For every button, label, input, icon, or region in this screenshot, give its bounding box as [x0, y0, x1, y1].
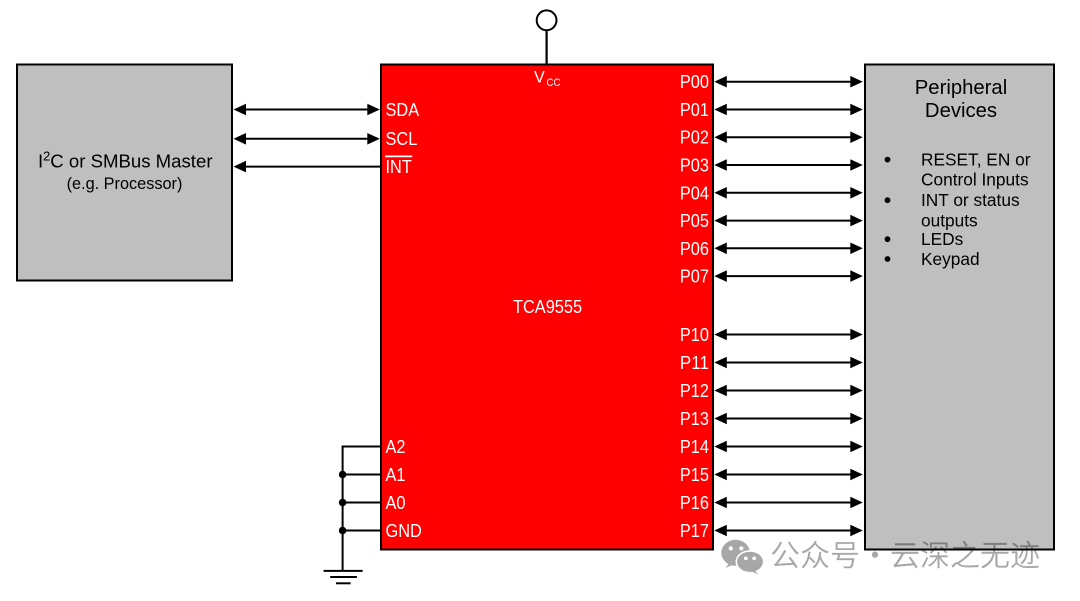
- svg-text:GND: GND: [386, 521, 422, 541]
- svg-text:LEDs: LEDs: [921, 229, 964, 249]
- svg-text:P03: P03: [680, 156, 709, 176]
- svg-text:INT: INT: [386, 157, 412, 177]
- svg-text:P01: P01: [680, 100, 709, 120]
- svg-text:RESET, EN or: RESET, EN or: [921, 150, 1031, 170]
- svg-text:CC: CC: [547, 77, 561, 89]
- svg-text:P04: P04: [680, 183, 709, 203]
- svg-text:A0: A0: [386, 493, 406, 513]
- svg-text:P13: P13: [680, 409, 709, 429]
- svg-text:A2: A2: [386, 437, 406, 457]
- svg-text:P17: P17: [680, 521, 709, 541]
- svg-text:SCL: SCL: [386, 129, 418, 149]
- svg-text:P11: P11: [680, 353, 709, 373]
- svg-text:P14: P14: [680, 437, 709, 457]
- svg-text:Peripheral: Peripheral: [915, 77, 1007, 99]
- svg-text:V: V: [534, 68, 545, 87]
- svg-text:P16: P16: [680, 493, 709, 513]
- svg-text:INT or status: INT or status: [921, 190, 1020, 210]
- svg-text:A1: A1: [386, 465, 406, 485]
- svg-text:P00: P00: [680, 72, 709, 92]
- svg-text:P10: P10: [680, 325, 709, 345]
- svg-text:TCA9555: TCA9555: [513, 297, 582, 317]
- svg-text:Keypad: Keypad: [921, 249, 980, 269]
- svg-text:Control Inputs: Control Inputs: [921, 169, 1029, 189]
- svg-text:P06: P06: [680, 239, 709, 259]
- svg-text:I2C or SMBus Master: I2C or SMBus Master: [38, 148, 213, 171]
- svg-text:SDA: SDA: [386, 100, 420, 120]
- svg-text:P15: P15: [680, 465, 709, 485]
- svg-text:Devices: Devices: [925, 100, 997, 122]
- svg-text:P12: P12: [680, 381, 709, 401]
- svg-text:P02: P02: [680, 128, 709, 148]
- svg-text:P07: P07: [680, 267, 709, 287]
- svg-text:outputs: outputs: [921, 211, 978, 231]
- svg-text:(e.g. Processor): (e.g. Processor): [67, 175, 183, 193]
- svg-text:P05: P05: [680, 211, 709, 231]
